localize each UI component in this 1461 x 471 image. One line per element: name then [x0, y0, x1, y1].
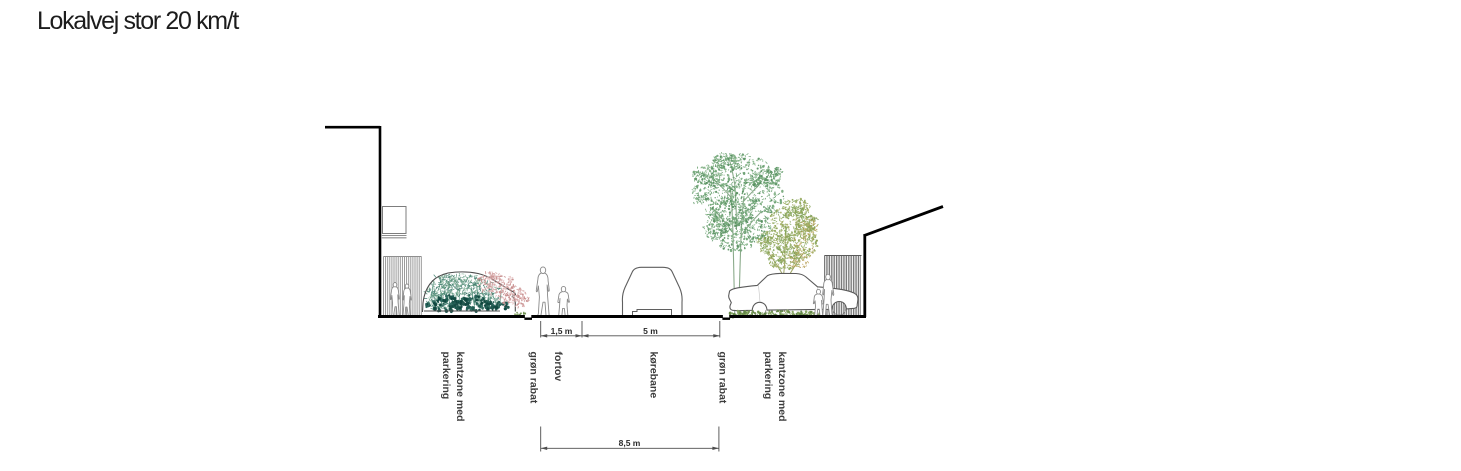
- svg-text:parkering: parkering: [440, 352, 452, 400]
- svg-text:Lokalvej stor 20 km/t: Lokalvej stor 20 km/t: [37, 7, 239, 35]
- svg-text:grøn rabat: grøn rabat: [717, 352, 729, 404]
- svg-text:1,5 m: 1,5 m: [551, 326, 573, 336]
- svg-text:kantzone med: kantzone med: [776, 352, 788, 422]
- svg-text:grøn rabat: grøn rabat: [528, 352, 540, 404]
- svg-text:kantzone med: kantzone med: [454, 352, 466, 422]
- svg-text:8,5 m: 8,5 m: [619, 438, 641, 448]
- svg-text:kørebane: kørebane: [648, 352, 660, 399]
- svg-text:fortov: fortov: [552, 352, 564, 382]
- svg-text:5 m: 5 m: [643, 326, 658, 336]
- svg-text:parkering: parkering: [762, 352, 774, 400]
